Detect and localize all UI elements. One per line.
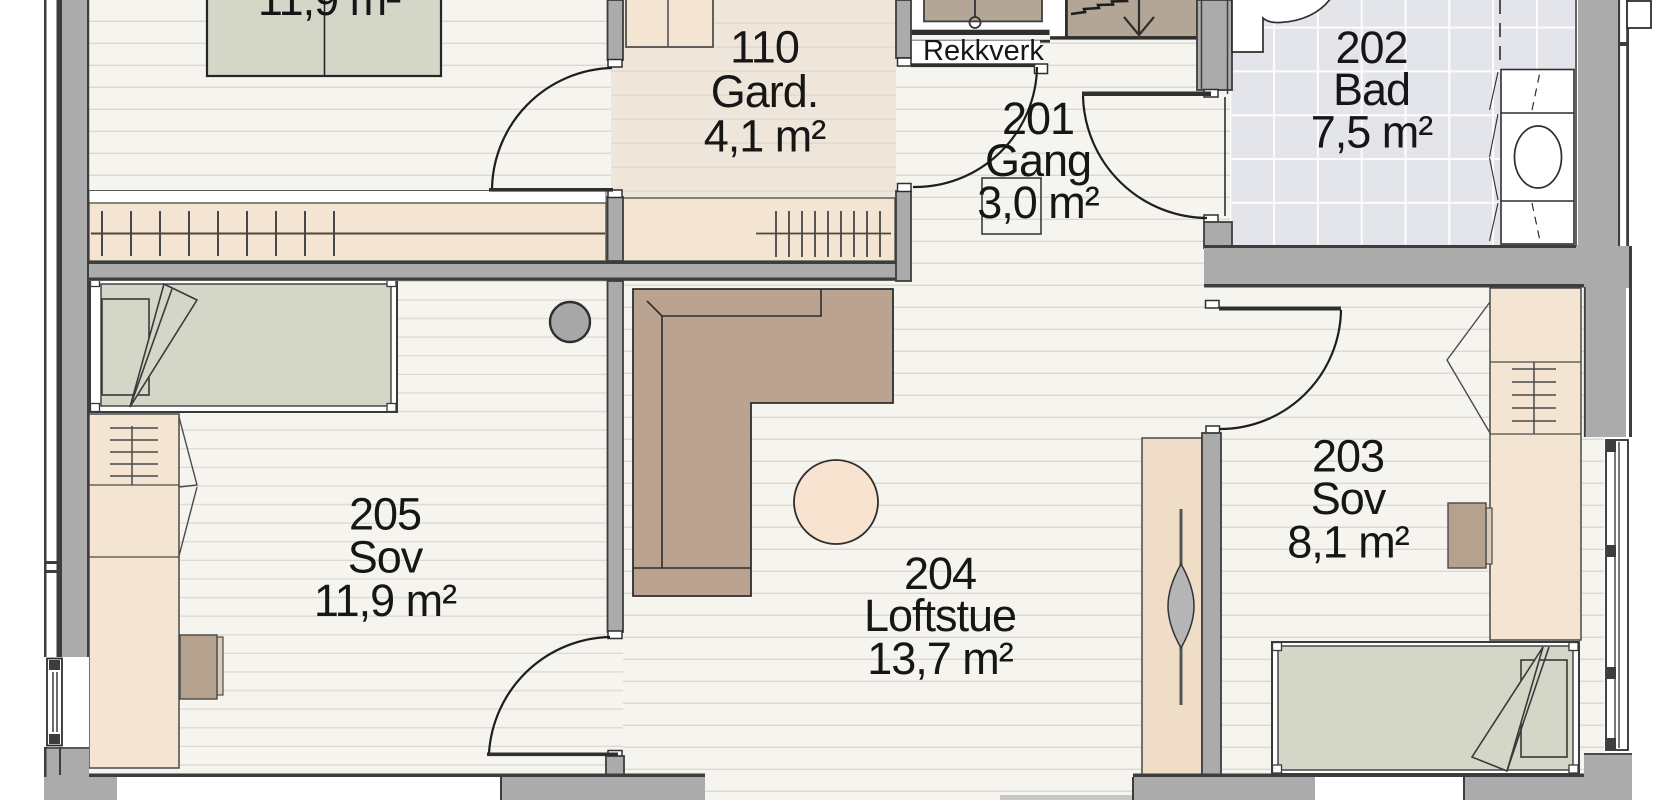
svg-text:Gard.: Gard. — [711, 66, 819, 117]
svg-text:11,9 m²: 11,9 m² — [314, 575, 457, 626]
svg-text:13,7 m²: 13,7 m² — [867, 633, 1014, 684]
svg-text:3,0 m²: 3,0 m² — [977, 177, 1100, 228]
svg-text:110: 110 — [730, 22, 799, 73]
svg-text:7,5 m²: 7,5 m² — [1311, 107, 1434, 158]
svg-text:11,9 m²: 11,9 m² — [258, 0, 401, 25]
svg-text:Rekkverk: Rekkverk — [923, 35, 1044, 67]
svg-text:8,1 m²: 8,1 m² — [1287, 517, 1410, 568]
svg-text:4,1 m²: 4,1 m² — [704, 111, 827, 162]
